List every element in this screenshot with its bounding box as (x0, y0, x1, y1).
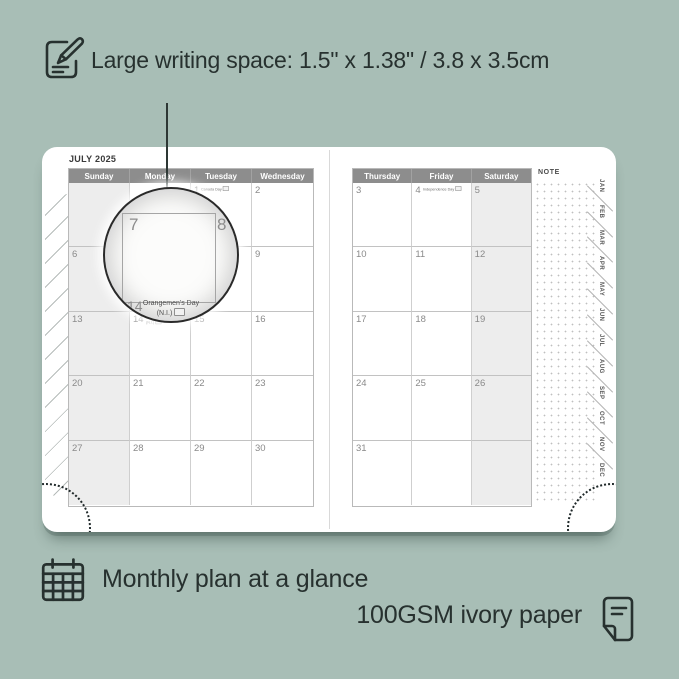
calendar-cell: 17 (353, 312, 412, 376)
calendar-cell: 4Independence Day (412, 183, 471, 247)
calendar-cell: 21 (130, 376, 191, 440)
month-tab-mar: MAR (588, 225, 614, 251)
calendar-cell: 2 (252, 183, 313, 247)
weekday-header-row: Sunday Monday Tuesday Wednesday (69, 169, 313, 183)
month-tab-jun: JUN (588, 302, 614, 328)
calendar-cell: 29 (191, 441, 252, 505)
month-title: JULY 2025 (69, 154, 116, 164)
pencil-note-icon (40, 33, 86, 83)
calendar-cell: 22 (191, 376, 252, 440)
month-tab-may: MAY (588, 276, 614, 302)
monthly-plan-label: Monthly plan at a glance (102, 565, 368, 594)
calendar-body: 3 4Independence Day 5 10 11 12 17 18 19 … (353, 183, 531, 505)
callout-pointer-line (166, 103, 168, 191)
calendar-cell: 13 (69, 312, 130, 376)
calendar-cell: 15 (191, 312, 252, 376)
calendar-cell: 26 (472, 376, 531, 440)
calendar-cell: 10 (353, 247, 412, 311)
writing-space-label: Large writing space: 1.5" x 1.38" / 3.8 … (91, 47, 549, 74)
month-tab-nov: NOV (588, 431, 614, 457)
calendar-cell: 3 (353, 183, 412, 247)
magnified-holiday-label: Orangemen's Day (N.I.) (105, 300, 237, 319)
magnifier-circle: 7 8 14 Orangemen's Day (N.I.) (103, 187, 239, 323)
holiday-tag-box (174, 308, 185, 316)
calendar-cell: 30 (252, 441, 313, 505)
weekday-header: Sunday (69, 169, 130, 183)
calendar-cell: 28 (130, 441, 191, 505)
paper-sheet-icon (596, 593, 640, 645)
calendar-grid-right: Thursday Friday Saturday 3 4Independence… (352, 168, 532, 507)
weekday-header: Monday (130, 169, 191, 183)
weekday-header: Tuesday (191, 169, 252, 183)
calendar-cell: 16 (252, 312, 313, 376)
holiday-tag-box (455, 186, 461, 191)
magnified-adjacent-day: 8 (217, 215, 226, 235)
calendar-cell: 20 (69, 376, 130, 440)
holiday-label: Independence Day (423, 186, 462, 192)
month-tab-strip: JAN FEB MAR APR MAY JUN JUL AUG SEP OCT … (588, 173, 614, 483)
calendar-cell: 31 (353, 441, 412, 505)
calendar-cell (412, 441, 471, 505)
weekday-header: Friday (412, 169, 471, 183)
holiday-tag-box (223, 186, 229, 191)
month-tab-sep: SEP (588, 380, 614, 406)
month-tab-feb: FEB (588, 199, 614, 225)
calendar-cell: 23 (252, 376, 313, 440)
calendar-cell (472, 441, 531, 505)
paper-label: 100GSM ivory paper (0, 601, 582, 630)
weekday-header-row: Thursday Friday Saturday (353, 169, 531, 183)
page-spine (329, 150, 330, 529)
calendar-cell: 11 (412, 247, 471, 311)
magnified-day: 7 (129, 215, 138, 235)
calendar-cell: 25 (412, 376, 471, 440)
holiday-label: Canada Day (201, 186, 229, 192)
weekday-header: Wednesday (252, 169, 313, 183)
calendar-cell: 24 (353, 376, 412, 440)
month-tab-dec: DEC (588, 457, 614, 483)
month-tab-aug: AUG (588, 354, 614, 380)
month-tab-oct: OCT (588, 405, 614, 431)
month-tab-jul: JUL (588, 328, 614, 354)
calendar-cell: 19 (472, 312, 531, 376)
calendar-cell: 9 (252, 247, 313, 311)
month-tab-jan: JAN (588, 173, 614, 199)
month-tab-apr: APR (588, 250, 614, 276)
note-label: NOTE (538, 169, 560, 176)
calendar-cell: 12 (472, 247, 531, 311)
weekday-header: Saturday (472, 169, 531, 183)
calendar-cell: 18 (412, 312, 471, 376)
weekday-header: Thursday (353, 169, 412, 183)
calendar-cell: 5 (472, 183, 531, 247)
calendar-cell: 27 (69, 441, 130, 505)
calendar-grid-icon (38, 556, 88, 606)
